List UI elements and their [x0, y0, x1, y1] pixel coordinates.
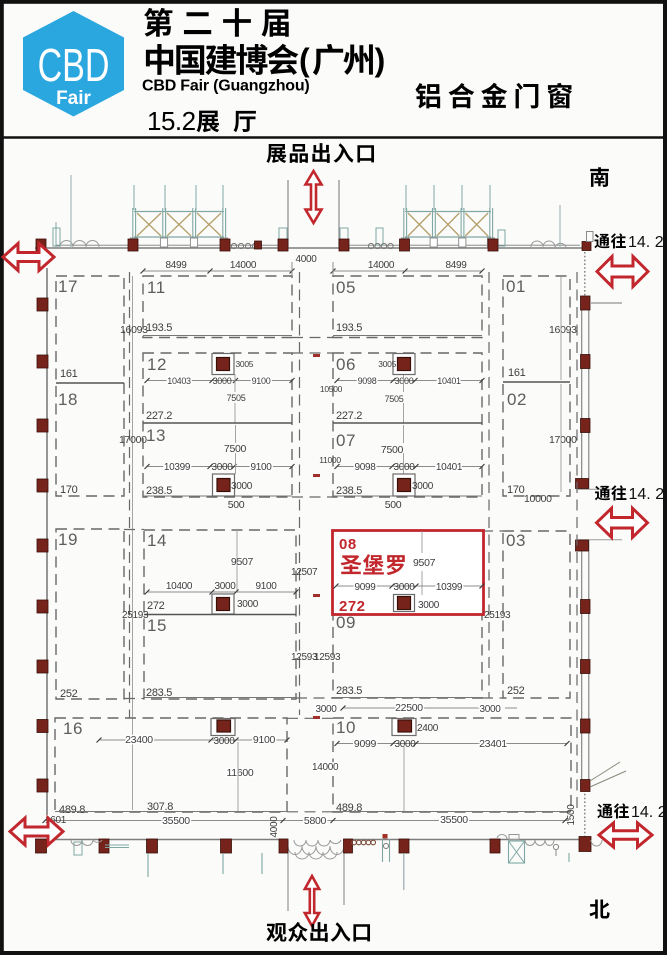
svg-text:14. 2: 14. 2 [629, 486, 665, 503]
svg-text:17000: 17000 [549, 434, 577, 446]
svg-text:3000: 3000 [213, 376, 232, 386]
svg-text:12: 12 [147, 355, 167, 374]
svg-text:4000: 4000 [295, 254, 317, 265]
svg-text:12593: 12593 [314, 652, 341, 663]
svg-text:12507: 12507 [291, 567, 318, 578]
svg-text:35500: 35500 [162, 815, 190, 827]
svg-text:14. 2: 14. 2 [631, 804, 667, 821]
svg-text:9100: 9100 [252, 376, 271, 386]
svg-text:): ) [375, 42, 386, 78]
svg-text:2400: 2400 [417, 723, 439, 734]
svg-text:16093: 16093 [120, 324, 148, 336]
svg-text:22500: 22500 [395, 702, 423, 714]
svg-text:3000: 3000 [211, 462, 233, 473]
svg-text:35500: 35500 [440, 814, 468, 826]
svg-text:10401: 10401 [437, 376, 461, 386]
svg-text:500: 500 [228, 499, 245, 511]
svg-text:500: 500 [385, 499, 402, 511]
svg-text:9507: 9507 [231, 556, 254, 568]
svg-text:(: ( [299, 42, 310, 78]
svg-text:170: 170 [507, 484, 525, 496]
svg-text:7505: 7505 [385, 394, 404, 404]
svg-text:05: 05 [336, 278, 356, 297]
svg-text:CBD Fair (Guangzhou): CBD Fair (Guangzhou) [142, 78, 310, 95]
svg-text:9098: 9098 [358, 376, 377, 386]
svg-text:10399: 10399 [164, 462, 191, 473]
svg-text:14: 14 [147, 531, 167, 550]
svg-text:15.2: 15.2 [147, 106, 196, 136]
svg-text:193.5: 193.5 [146, 322, 172, 334]
svg-text:10: 10 [336, 718, 356, 737]
svg-text:227.2: 227.2 [146, 410, 172, 422]
svg-text:11: 11 [147, 278, 166, 297]
svg-text:02: 02 [507, 390, 527, 409]
svg-text:14000: 14000 [312, 762, 339, 773]
svg-text:3000: 3000 [214, 581, 236, 592]
svg-text:3000: 3000 [393, 462, 415, 473]
svg-text:272: 272 [147, 600, 165, 612]
svg-text:23401: 23401 [479, 738, 507, 750]
svg-text:3000: 3000 [479, 704, 501, 715]
svg-text:07: 07 [336, 431, 356, 450]
svg-text:9100: 9100 [253, 734, 276, 746]
svg-text:170: 170 [60, 484, 78, 496]
svg-text:11600: 11600 [227, 767, 254, 779]
svg-text:08: 08 [339, 536, 357, 553]
svg-text:10000: 10000 [524, 493, 552, 505]
svg-text:25193: 25193 [484, 610, 511, 621]
svg-text:252: 252 [507, 685, 525, 697]
svg-text:3000: 3000 [237, 599, 259, 610]
svg-text:1500: 1500 [566, 804, 577, 826]
svg-text:3000: 3000 [213, 736, 235, 747]
svg-text:16: 16 [63, 719, 83, 738]
svg-text:3005: 3005 [236, 359, 254, 369]
svg-text:03: 03 [506, 531, 526, 550]
svg-text:283.5: 283.5 [336, 685, 362, 697]
svg-text:9100: 9100 [255, 581, 277, 592]
svg-text:17: 17 [58, 277, 78, 296]
svg-text:10400: 10400 [166, 581, 193, 592]
svg-text:3000: 3000 [315, 704, 337, 715]
svg-text:14000: 14000 [368, 260, 395, 271]
svg-text:06: 06 [336, 355, 356, 374]
svg-text:161: 161 [60, 368, 78, 380]
svg-text:15: 15 [147, 616, 167, 635]
svg-text:CBD: CBD [38, 39, 110, 91]
svg-text:8499: 8499 [165, 260, 187, 271]
svg-text:9100: 9100 [250, 462, 272, 473]
svg-text:3000: 3000 [393, 582, 415, 593]
svg-text:193.5: 193.5 [336, 322, 362, 334]
svg-text:238.5: 238.5 [146, 485, 172, 497]
svg-text:272: 272 [339, 598, 366, 615]
svg-text:489.8: 489.8 [336, 802, 362, 814]
svg-text:7500: 7500 [381, 444, 404, 456]
svg-text:10401: 10401 [436, 462, 463, 473]
svg-text:14000: 14000 [230, 260, 257, 271]
svg-text:Fair: Fair [56, 88, 91, 109]
svg-text:19: 19 [58, 530, 78, 549]
svg-text:8499: 8499 [445, 260, 467, 271]
svg-text:9507: 9507 [413, 557, 436, 569]
svg-text:238.5: 238.5 [336, 485, 362, 497]
svg-text:3000: 3000 [418, 600, 440, 611]
svg-text:5800: 5800 [304, 815, 327, 827]
svg-text:01: 01 [506, 277, 526, 296]
svg-text:9098: 9098 [354, 462, 376, 473]
svg-text:23400: 23400 [125, 734, 153, 746]
svg-text:18: 18 [58, 390, 78, 409]
svg-text:10500: 10500 [320, 384, 343, 394]
svg-text:16093: 16093 [549, 324, 577, 336]
svg-text:3000: 3000 [412, 481, 434, 492]
svg-text:10399: 10399 [436, 582, 463, 593]
svg-text:252: 252 [60, 688, 78, 700]
svg-text:3005: 3005 [378, 359, 396, 369]
svg-text:10403: 10403 [167, 376, 191, 386]
svg-text:9099: 9099 [354, 582, 376, 593]
svg-text:25193: 25193 [122, 610, 149, 621]
svg-text:3000: 3000 [395, 376, 414, 386]
svg-text:11000: 11000 [319, 455, 341, 465]
svg-text:161: 161 [508, 367, 526, 379]
svg-text:7505: 7505 [227, 393, 246, 403]
svg-text:4000: 4000 [269, 816, 280, 838]
svg-text:13: 13 [146, 426, 166, 445]
svg-text:9099: 9099 [354, 738, 377, 750]
svg-text:14. 2: 14. 2 [628, 234, 664, 251]
svg-text:227.2: 227.2 [336, 410, 362, 422]
svg-text:3000: 3000 [394, 739, 416, 750]
svg-text:3000: 3000 [231, 481, 253, 492]
